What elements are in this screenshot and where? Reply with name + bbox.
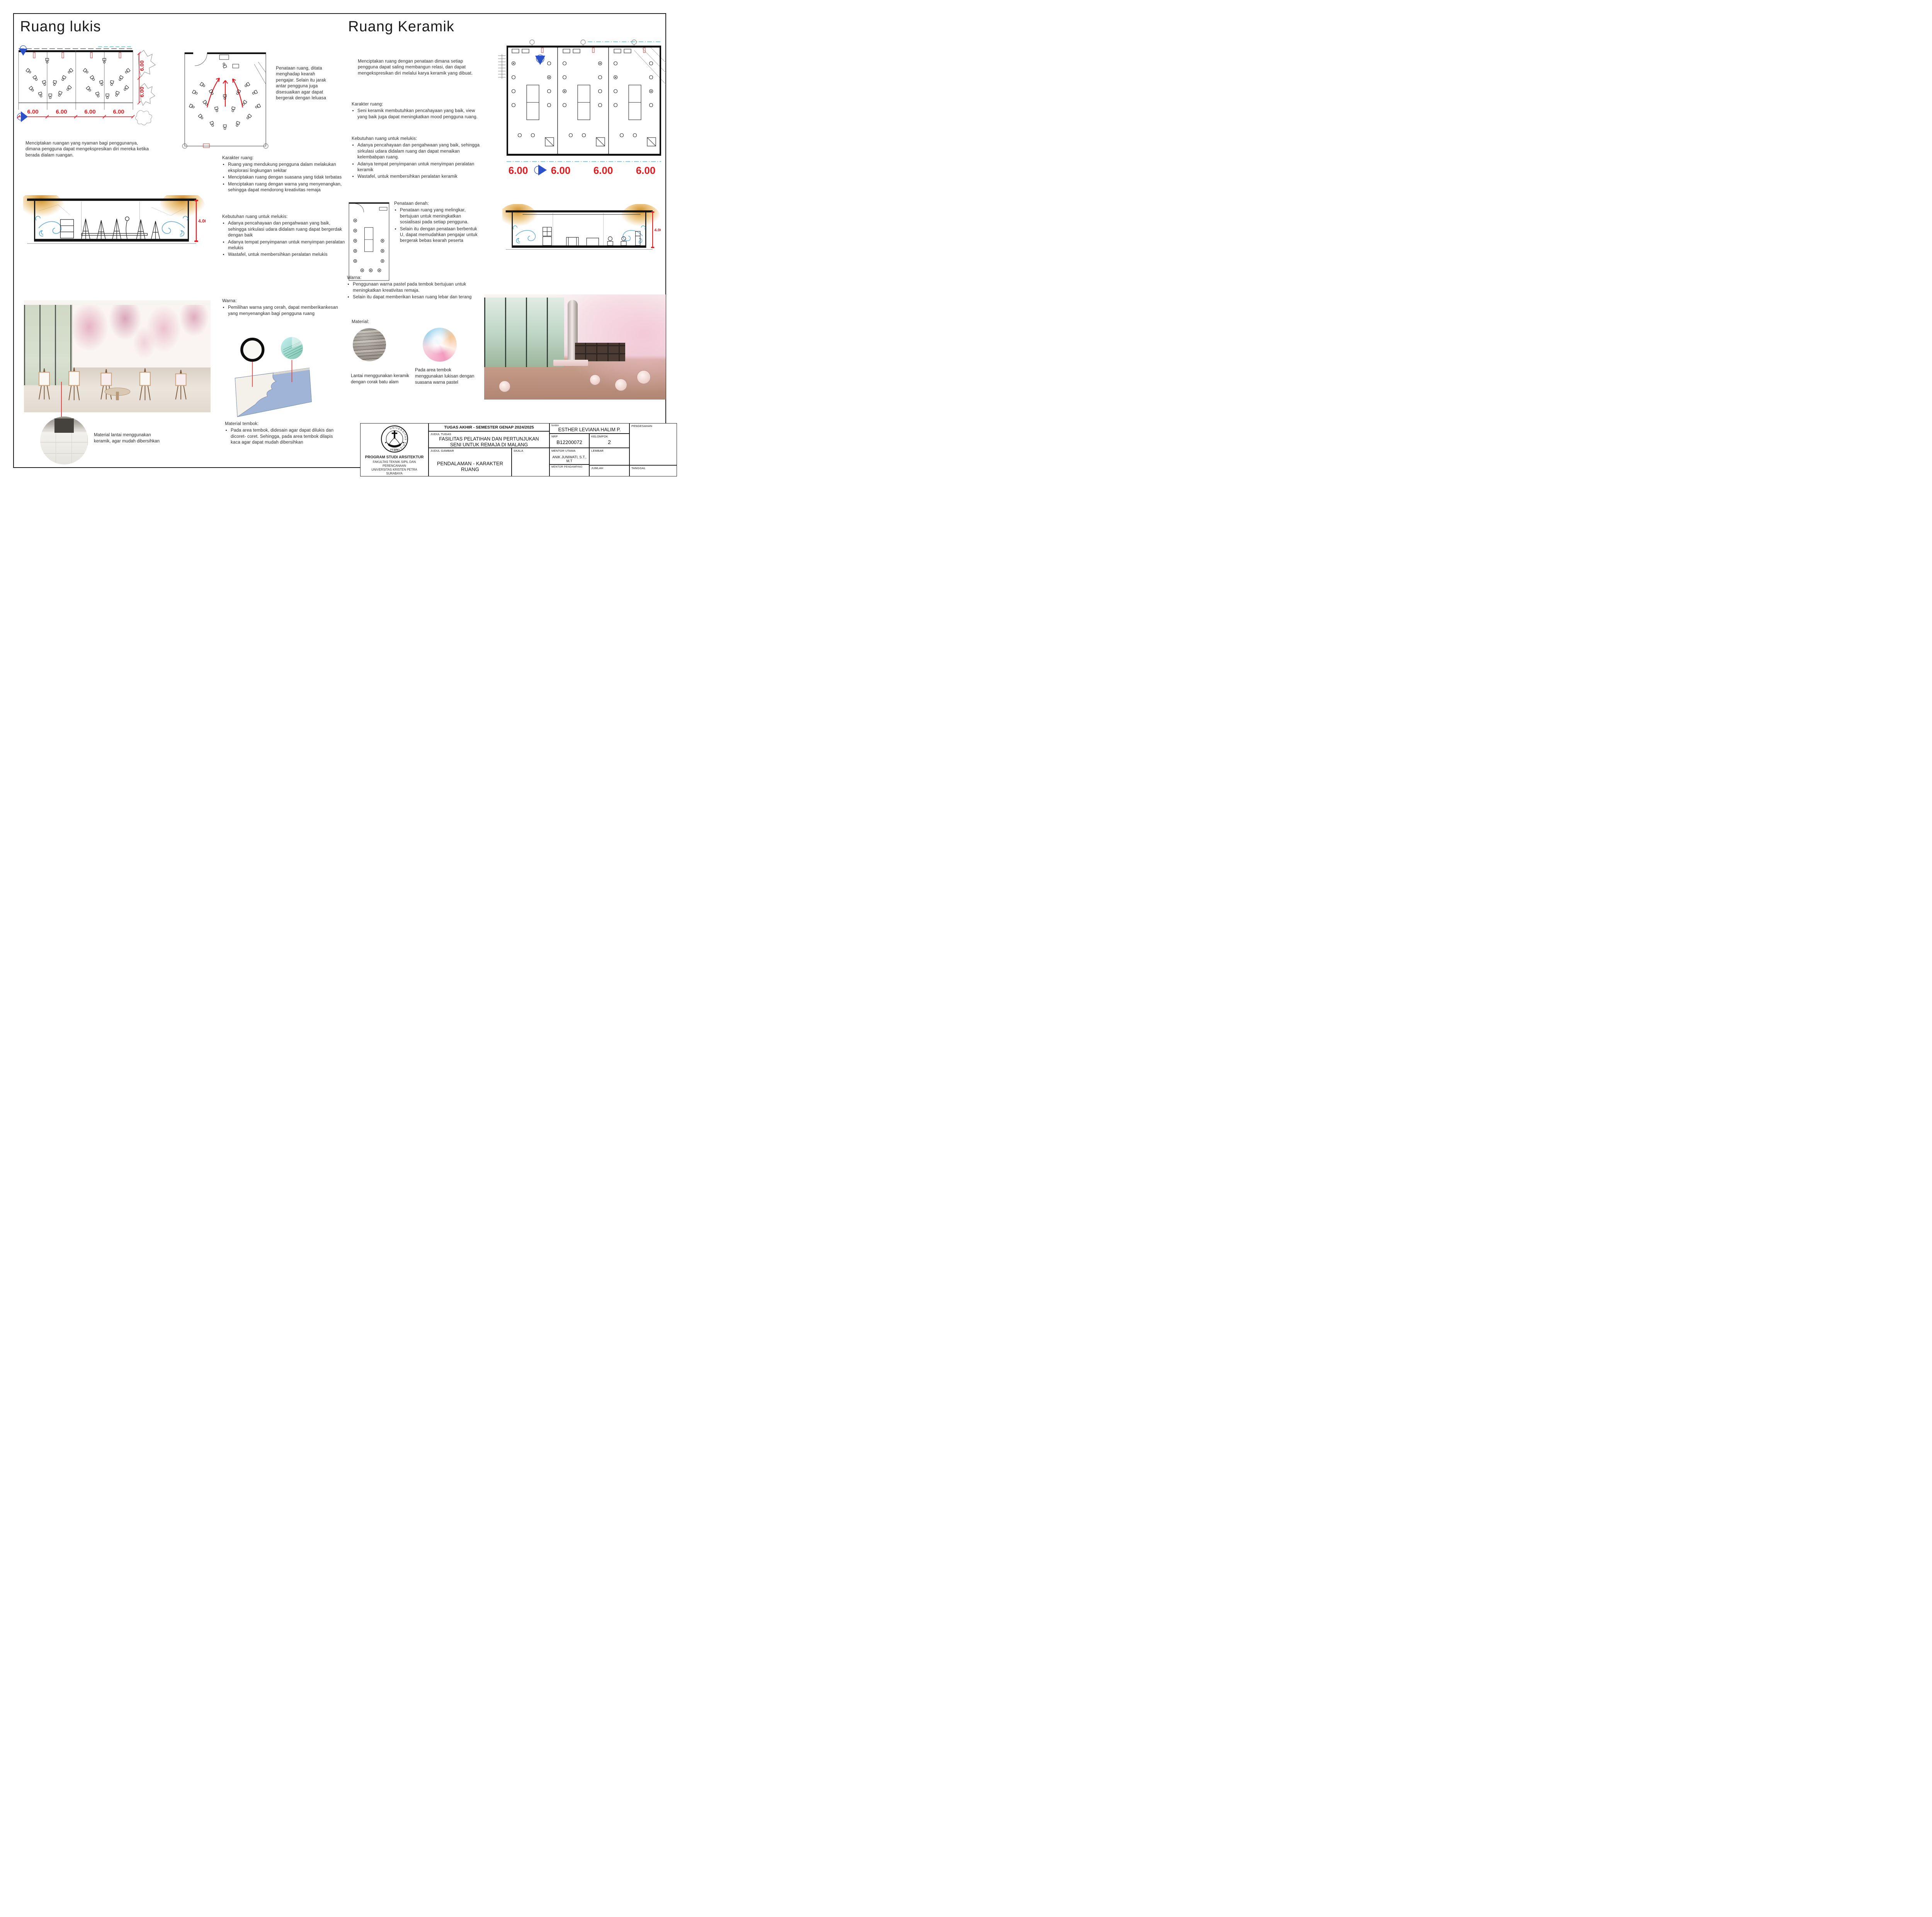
bullet-item: Adanya pencahayaan dan pengahwaan yang b…	[228, 221, 348, 238]
bullet-item: Menciptakan ruang dengan warna yang meny…	[228, 182, 348, 194]
nrp-value: B12200072	[550, 439, 589, 445]
pengesahan-cell: PENGESAHAN	[629, 423, 677, 465]
dim-label-large: 6.00	[594, 165, 613, 176]
bullet-list: Adanya pencahayaan dan pengahwaan yang b…	[222, 221, 348, 258]
dim-label: 6.00	[84, 109, 95, 115]
petra-logo-icon: UNIVERSITAS KRISTEN PETRA	[381, 425, 408, 453]
judul-gambar-value: PENDALAMAN - KARAKTER RUANG	[429, 461, 511, 472]
section-furniture	[543, 227, 640, 245]
judul-gambar-cell: JUDUL GAMBAR PENDALAMAN - KARAKTER RUANG	[429, 448, 512, 476]
title-block: UNIVERSITAS KRISTEN PETRA PROGRAM STUDI …	[360, 423, 677, 476]
kebutuhan-ruang-block-right: Kebutuhan ruang untuk melukis: Adanya pe…	[352, 136, 481, 181]
bullet-item: Wastafel, untuk membersihkan peralatan m…	[228, 252, 348, 258]
dim-label-large: 6.00	[509, 165, 528, 176]
judul-tugas-cell: JUDUL TUGAS FASILITAS PELATIHAN DAN PERT…	[429, 431, 549, 448]
dim-label-large: 6.00	[551, 165, 571, 176]
jumlah-cell: JUMLAH	[589, 465, 629, 476]
stairs	[498, 54, 506, 79]
institution-line2: FAKULTAS TEKNIK SIPIL DAN PERENCANAAN	[361, 460, 427, 468]
institution-cell: UNIVERSITAS KRISTEN PETRA PROGRAM STUDI …	[360, 423, 429, 476]
render-easels	[28, 345, 207, 403]
nama-value: ESTHER LEVIANA HALIM P.	[550, 427, 629, 432]
storage-shelf	[575, 343, 625, 361]
block-heading: Kebutuhan ruang untuk melukis:	[222, 214, 348, 220]
kelompok-cell: KELOMPOK 2	[589, 434, 629, 448]
nrp-label: NRP	[551, 435, 558, 438]
kelompok-label: KELOMPOK	[591, 435, 608, 438]
painting-intro-text: Menciptakan ruangan yang nyaman bagi pen…	[26, 141, 150, 158]
dim-label: 6.00	[56, 109, 67, 115]
mentor-pendamping-cell: MENTOR PENDAMPING	[549, 464, 589, 476]
dim-label-large: 6.00	[636, 165, 656, 176]
bullet-item: Ruang yang mendukung pengguna dalam mela…	[228, 162, 348, 174]
lembar-label: LEMBAR	[591, 449, 604, 452]
floor-plan-painting-focus	[182, 49, 270, 151]
bullet-list: Penataan ruang yang melingkar, bertujuan…	[394, 208, 482, 244]
logo-bottom-text: PETRA	[390, 449, 399, 451]
dim-label: 6.00	[27, 109, 38, 115]
studio-equipment	[512, 49, 656, 146]
doorway-in-photo	[54, 418, 74, 433]
bullet-item: Pemilihan warna yang cerah, dapat member…	[228, 305, 348, 317]
pottery-wheels	[512, 62, 653, 137]
pottery-wheel	[499, 381, 510, 392]
block-heading: Kebutuhan ruang untuk melukis:	[352, 136, 481, 142]
nama-label: NAMA	[551, 424, 559, 427]
bullet-list: Pemilihan warna yang cerah, dapat member…	[222, 305, 348, 317]
bullet-item: Penataan ruang yang melingkar, bertujuan…	[400, 208, 482, 225]
penataan-denah-block: Penataan denah: Penataan ruang yang meli…	[394, 201, 482, 245]
pottery-wheel	[590, 374, 600, 385]
block-heading: Warna:	[347, 275, 476, 281]
bullet-item: Pada area tembok, didesain agar dapat di…	[231, 428, 341, 446]
bullet-item: Adanya tempat penyimpanan untuk menyimpa…	[357, 162, 481, 173]
page-title-ruang-keramik: Ruang Keramik	[348, 19, 454, 35]
material-lantai-caption: Material lantai menggunakan keramik, aga…	[94, 432, 165, 444]
kelompok-value: 2	[590, 439, 629, 445]
render-painting-room	[24, 300, 211, 412]
institution-line4: SURABAYA	[361, 472, 427, 476]
dim-label-vertical: 6.00	[139, 87, 145, 97]
section-dim-label: 4.00	[654, 228, 661, 232]
glass-sample-circle-icon	[281, 337, 303, 359]
judul-tugas-label: JUDUL TUGAS	[430, 432, 451, 436]
north-marker-icon	[535, 55, 545, 65]
block-heading: Penataan denah:	[394, 201, 482, 207]
floor-plan-ceramic-focus	[347, 200, 391, 283]
skala-label: SKALA	[514, 449, 523, 452]
work-table	[553, 360, 588, 366]
kebutuhan-ruang-block: Kebutuhan ruang untuk melukis: Adanya pe…	[222, 214, 348, 259]
section-marker-icon	[534, 165, 547, 175]
flower-sketch	[135, 111, 152, 125]
dim-label: 6.00	[113, 109, 124, 115]
material-tembok-block: Material tembok: Pada area tembok, dides…	[225, 421, 341, 447]
page-title-ruang-lukis: Ruang lukis	[20, 19, 101, 35]
mentor-utama-label: MENTOR UTAMA	[551, 449, 576, 452]
floor-plan-ceramic: 6.00 6.00 6.00 6.00	[495, 39, 667, 179]
bullet-list: Seni keramik membutuhkan pencahayaan yan…	[352, 108, 479, 120]
pottery-wheels-u	[354, 219, 384, 272]
mentor-utama-cell: MENTOR UTAMA ANIK JUNIWATI, S.T., M.T	[549, 448, 589, 464]
lembar-cell: LEMBAR	[589, 448, 629, 465]
tugas-akhir-header: TUGAS AKHIR - SEMESTER GENAP 2024/2025	[429, 425, 549, 430]
karakter-ruang-block: Karakter ruang: Ruang yang mendukung pen…	[222, 155, 348, 194]
section-easels	[60, 217, 160, 239]
bullet-list: Penggunaan warna pastel pada tembok bert…	[347, 282, 476, 300]
presentation-sheet: Ruang lukis	[0, 0, 678, 479]
stone-swatch-icon	[353, 328, 386, 361]
bullet-item: Adanya tempat penyimpanan untuk menyimpa…	[228, 240, 348, 252]
pastel-paint-swatch-icon	[423, 328, 457, 362]
judul-gambar-label: JUDUL GAMBAR	[430, 449, 454, 452]
block-heading: Karakter ruang:	[222, 155, 348, 161]
bullet-item: Selain itu dapat memberikan kesan ruang …	[353, 294, 476, 300]
warna-block-right: Warna: Penggunaan warna pastel pada temb…	[347, 275, 476, 301]
jumlah-label: JUMLAH	[591, 466, 603, 470]
block-heading: Warna:	[222, 298, 348, 304]
pottery-wheel	[637, 370, 651, 384]
institution-line1: PROGRAM STUDI ARSITEKTUR	[361, 455, 427, 460]
ceramic-intro-text: Menciptakan ruang dengan penataan dimana…	[358, 59, 476, 77]
section-painting: 4.00	[23, 195, 206, 247]
material-diagram	[232, 332, 319, 422]
section-ceramic: 4.00	[502, 204, 661, 256]
dim-label-vertical: 6.00	[139, 60, 145, 71]
window-wall	[484, 298, 564, 367]
bullet-item: Adanya pencahayaan dan pengahwaan yang b…	[357, 143, 481, 160]
north-marker-icon	[19, 46, 27, 56]
bullet-item: Seni keramik membutuhkan pencahayaan yan…	[357, 108, 479, 120]
paint-sample-circle-icon	[242, 339, 263, 360]
bullet-item: Menciptakan ruang dengan suasana yang ti…	[228, 175, 348, 180]
bullet-list: Ruang yang mendukung pengguna dalam mela…	[222, 162, 348, 193]
tanggal-label: TANGGAL	[631, 466, 646, 470]
floor-material-photo	[40, 417, 88, 464]
bullet-item: Selain itu dengan penataan berbentuk U, …	[400, 226, 482, 244]
bullet-item: Wastafel, untuk membersihkan peralatan k…	[357, 174, 481, 180]
bullet-list: Pada area tembok, didesain agar dapat di…	[225, 428, 341, 446]
block-heading: Karakter ruang:	[352, 102, 479, 107]
judul-tugas-value: FASILITAS PELATIHAN DAN PERTUNJUKAN SENI…	[429, 436, 549, 448]
header-cell: TUGAS AKHIR - SEMESTER GENAP 2024/2025	[429, 423, 549, 431]
section-dim-label: 4.00	[198, 218, 206, 224]
warna-block-left: Warna: Pemilihan warna yang cerah, dapat…	[222, 298, 348, 318]
material-heading-right: Material:	[352, 319, 369, 325]
skala-cell: SKALA	[512, 448, 549, 476]
bullet-item: Penggunaan warna pastel pada tembok bert…	[353, 282, 476, 294]
stone-caption: Lantai menggunakan keramik dengan corak …	[351, 373, 413, 385]
focus-plan-annotation: Penataan ruang, ditata menghadap kearah …	[276, 66, 328, 101]
floor-plan-painting: 6.00 6.00 6.00 6.00 6.00 6.00	[16, 45, 171, 141]
render-ceramic-room	[484, 294, 666, 400]
bullet-list: Adanya pencahayaan dan pengahwaan yang b…	[352, 143, 481, 180]
nama-cell: NAMA ESTHER LEVIANA HALIM P.	[549, 423, 629, 434]
pastel-caption: Pada area tembok menggunakan lukisan den…	[415, 367, 480, 386]
karakter-ruang-block-right: Karakter ruang: Seni keramik membutuhkan…	[352, 102, 479, 121]
nrp-cell: NRP B12200072	[549, 434, 589, 448]
pengesahan-label: PENGESAHAN	[631, 424, 652, 428]
sunlight-glow	[502, 204, 538, 233]
mentor-pendamping-label: MENTOR PENDAMPING	[551, 466, 582, 468]
tanggal-cell: TANGGAL	[629, 465, 677, 476]
pottery-wheel	[615, 379, 627, 391]
institution-line3: UNIVERSITAS KRISTEN PETRA	[361, 468, 427, 472]
mentor-utama-value: ANIK JUNIWATI, S.T., M.T	[550, 455, 589, 463]
